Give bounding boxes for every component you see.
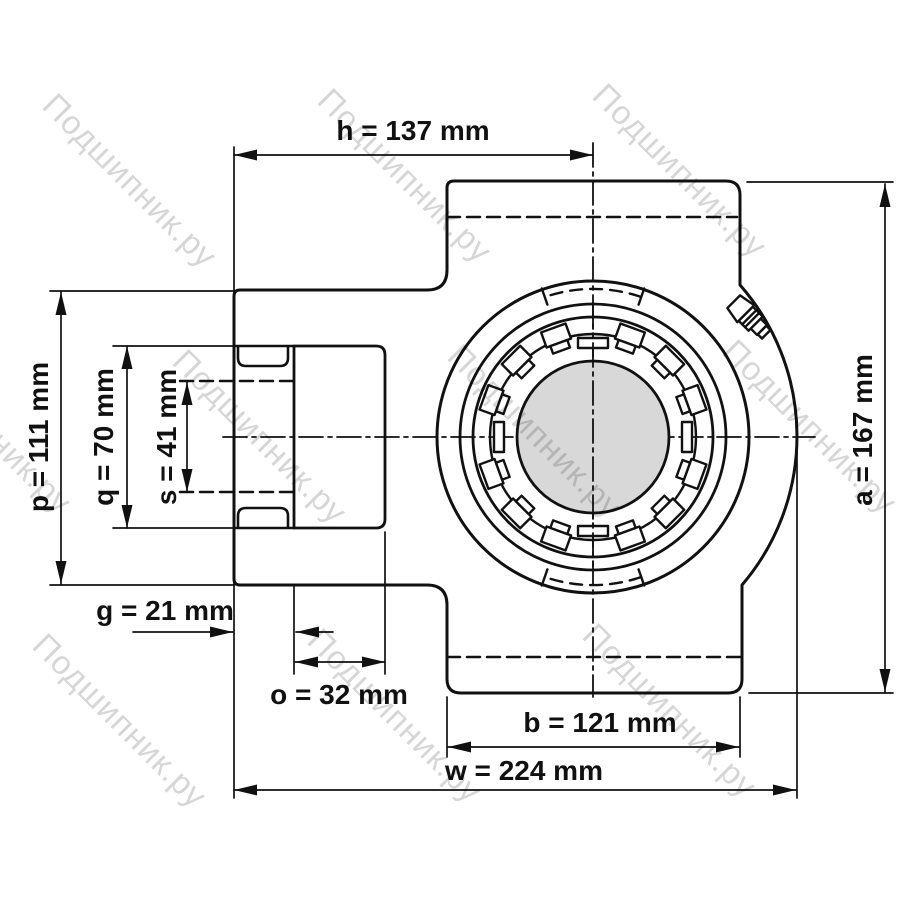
grease-fitting-icon xyxy=(725,293,774,342)
dimension-label-o: o = 32 mm xyxy=(270,679,408,710)
dimension-label-q: q = 70 mm xyxy=(88,368,119,506)
dimension-label-a: a = 167 mm xyxy=(847,354,878,506)
dimension-label-g: g = 21 mm xyxy=(96,595,234,626)
sleeve-groove-bottom xyxy=(238,508,288,527)
dimension-label-w: w = 224 mm xyxy=(444,755,603,786)
technical-drawing: h = 137 mm p = 111 mm q = 70 mm s = 41 m… xyxy=(0,0,900,900)
sleeve-groove-top xyxy=(238,347,288,366)
dimension-label-p: p = 111 mm xyxy=(23,362,54,512)
dimension-label-b: b = 121 mm xyxy=(523,707,676,738)
drawing-canvas: h = 137 mm p = 111 mm q = 70 mm s = 41 m… xyxy=(0,0,900,900)
dimension-label-h: h = 137 mm xyxy=(336,115,489,146)
dimension-label-s: s = 41 mm xyxy=(151,369,182,505)
